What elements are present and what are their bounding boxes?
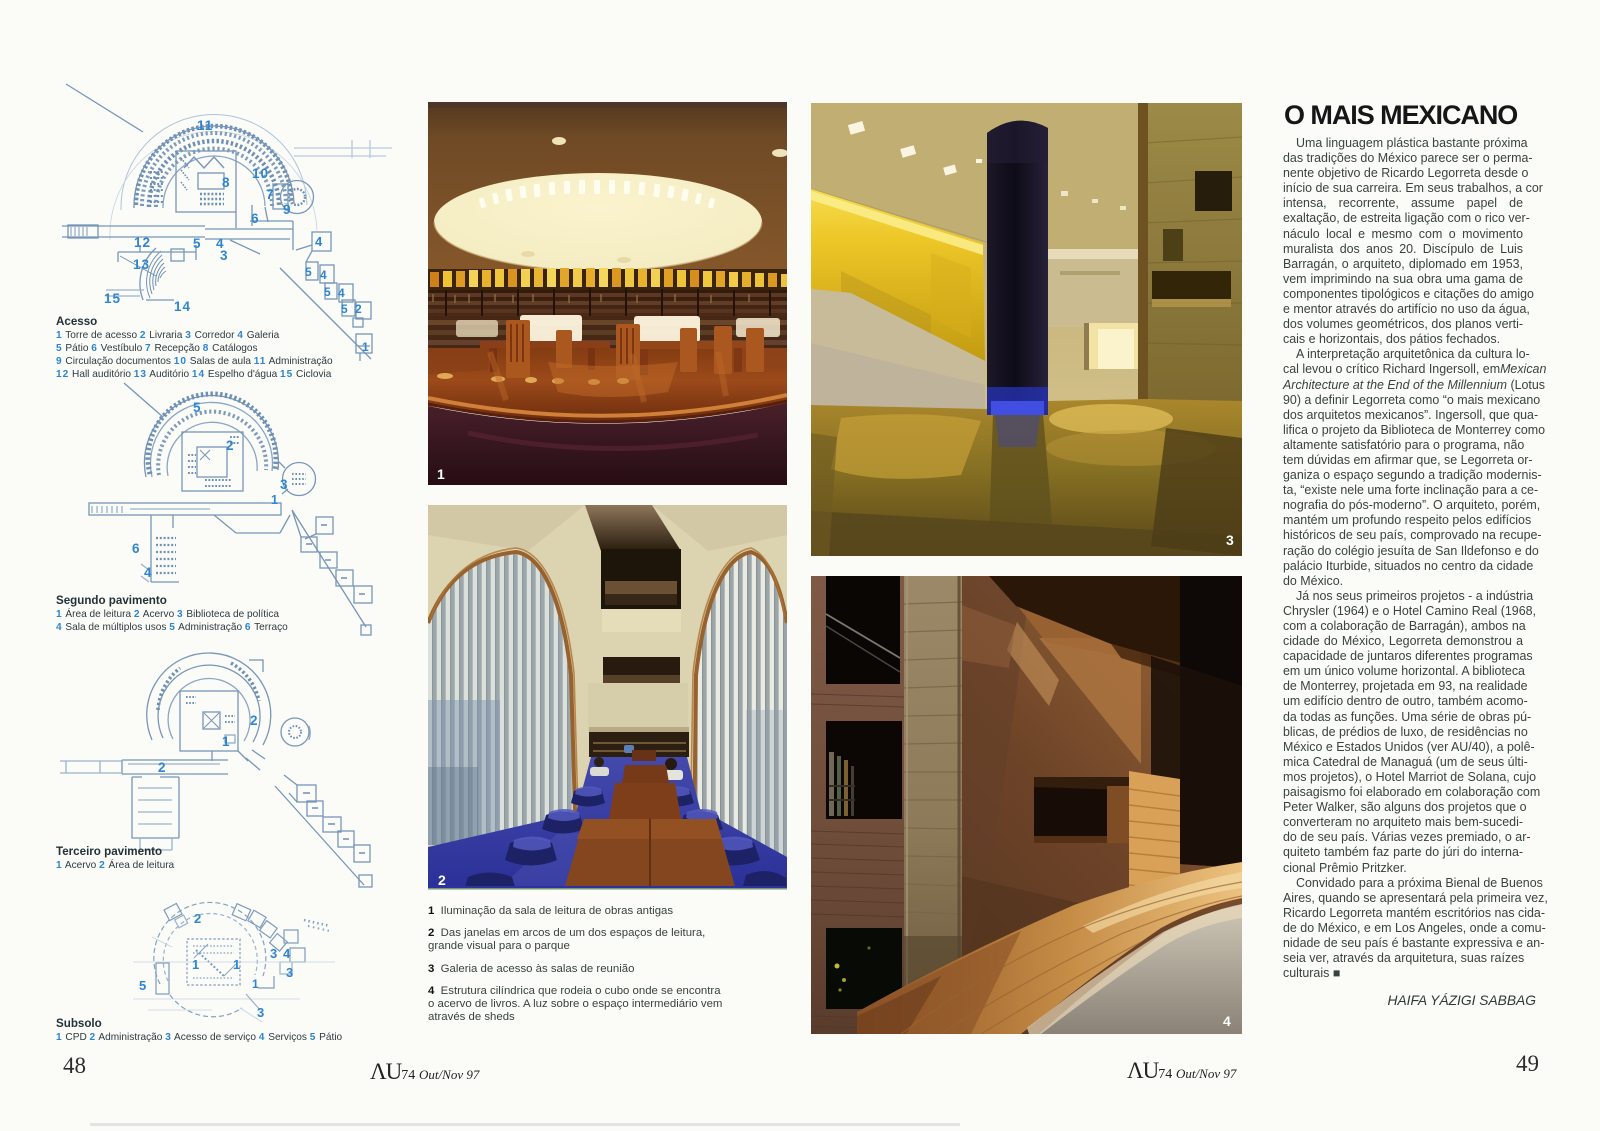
svg-text:4: 4 bbox=[320, 268, 328, 282]
svg-text:4: 4 bbox=[144, 565, 153, 580]
svg-text:10: 10 bbox=[252, 166, 269, 181]
svg-text:1: 1 bbox=[437, 466, 445, 482]
svg-text:1: 1 bbox=[271, 493, 279, 507]
svg-text:3: 3 bbox=[220, 248, 229, 263]
svg-text:3: 3 bbox=[1226, 532, 1234, 548]
svg-text:2: 2 bbox=[250, 713, 259, 728]
svg-text:2: 2 bbox=[355, 302, 363, 316]
svg-text:2: 2 bbox=[438, 872, 446, 888]
svg-text:6: 6 bbox=[251, 211, 260, 226]
svg-text:5: 5 bbox=[193, 400, 202, 415]
svg-text:4: 4 bbox=[283, 946, 291, 961]
svg-text:2: 2 bbox=[226, 438, 235, 453]
svg-text:3: 3 bbox=[286, 965, 294, 980]
svg-text:4: 4 bbox=[338, 286, 346, 300]
svg-text:4: 4 bbox=[315, 234, 323, 249]
svg-text:1: 1 bbox=[192, 957, 200, 972]
svg-text:5: 5 bbox=[324, 285, 332, 299]
svg-text:7: 7 bbox=[266, 187, 275, 202]
svg-text:1: 1 bbox=[222, 734, 231, 749]
svg-text:14: 14 bbox=[174, 299, 191, 314]
svg-text:3: 3 bbox=[270, 946, 278, 961]
svg-text:4: 4 bbox=[1223, 1013, 1231, 1029]
svg-text:12: 12 bbox=[134, 235, 151, 250]
svg-text:5: 5 bbox=[341, 302, 349, 316]
svg-text:2: 2 bbox=[194, 911, 202, 926]
svg-text:11: 11 bbox=[197, 118, 213, 133]
svg-text:3: 3 bbox=[280, 477, 289, 492]
svg-text:2: 2 bbox=[158, 760, 167, 775]
svg-text:8: 8 bbox=[222, 175, 231, 190]
svg-text:15: 15 bbox=[104, 291, 121, 306]
svg-text:5: 5 bbox=[139, 978, 147, 993]
svg-text:9: 9 bbox=[283, 202, 292, 217]
svg-text:13: 13 bbox=[133, 257, 150, 272]
svg-text:1: 1 bbox=[252, 977, 260, 991]
svg-text:1: 1 bbox=[233, 957, 241, 972]
svg-text:5: 5 bbox=[193, 236, 202, 251]
svg-text:6: 6 bbox=[132, 541, 141, 556]
svg-text:5: 5 bbox=[305, 265, 313, 279]
